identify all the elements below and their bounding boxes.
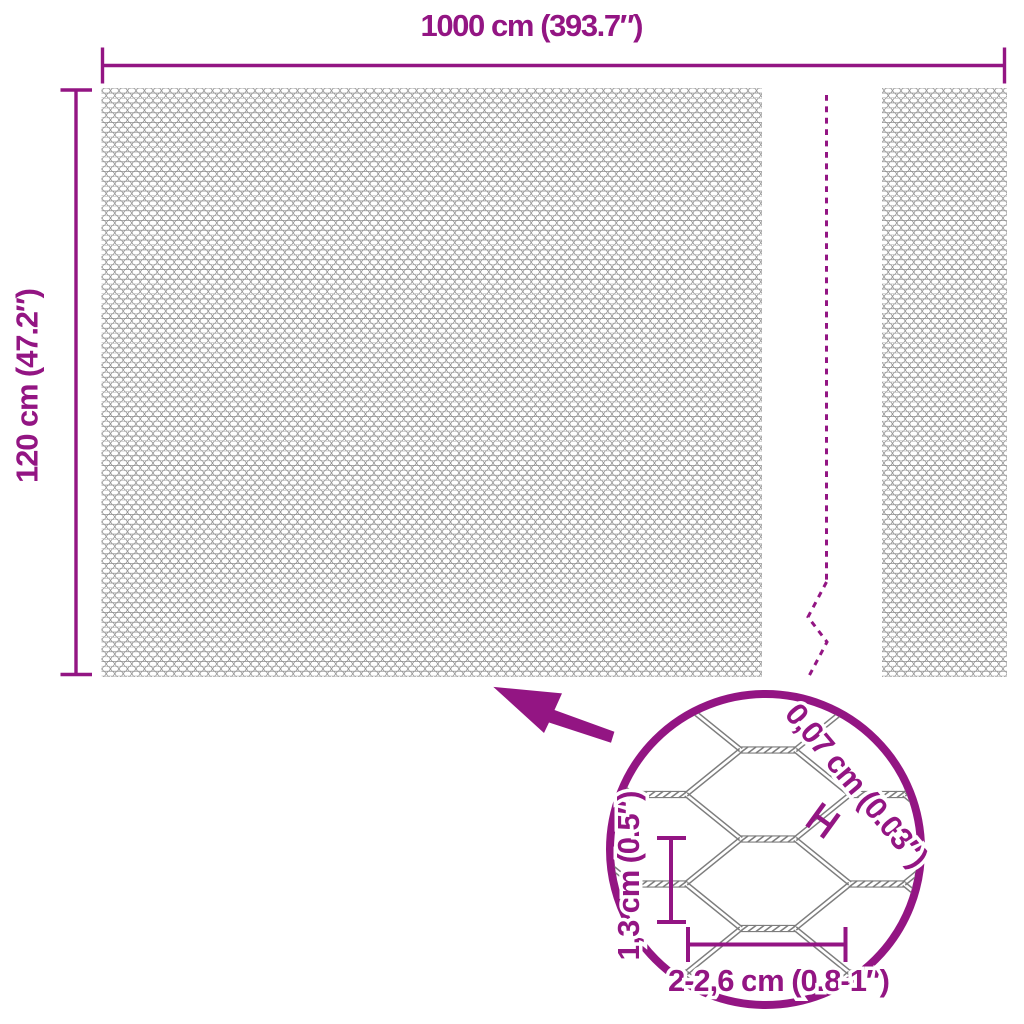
svg-text:120 cm (47.2″): 120 cm (47.2″) [10,288,45,483]
svg-text:1000 cm (393.7″): 1000 cm (393.7″) [421,8,644,43]
svg-text:1,3 cm (0.5″): 1,3 cm (0.5″) [611,791,646,961]
svg-text:2-2,6 cm (0.8-1″): 2-2,6 cm (0.8-1″) [668,963,890,998]
